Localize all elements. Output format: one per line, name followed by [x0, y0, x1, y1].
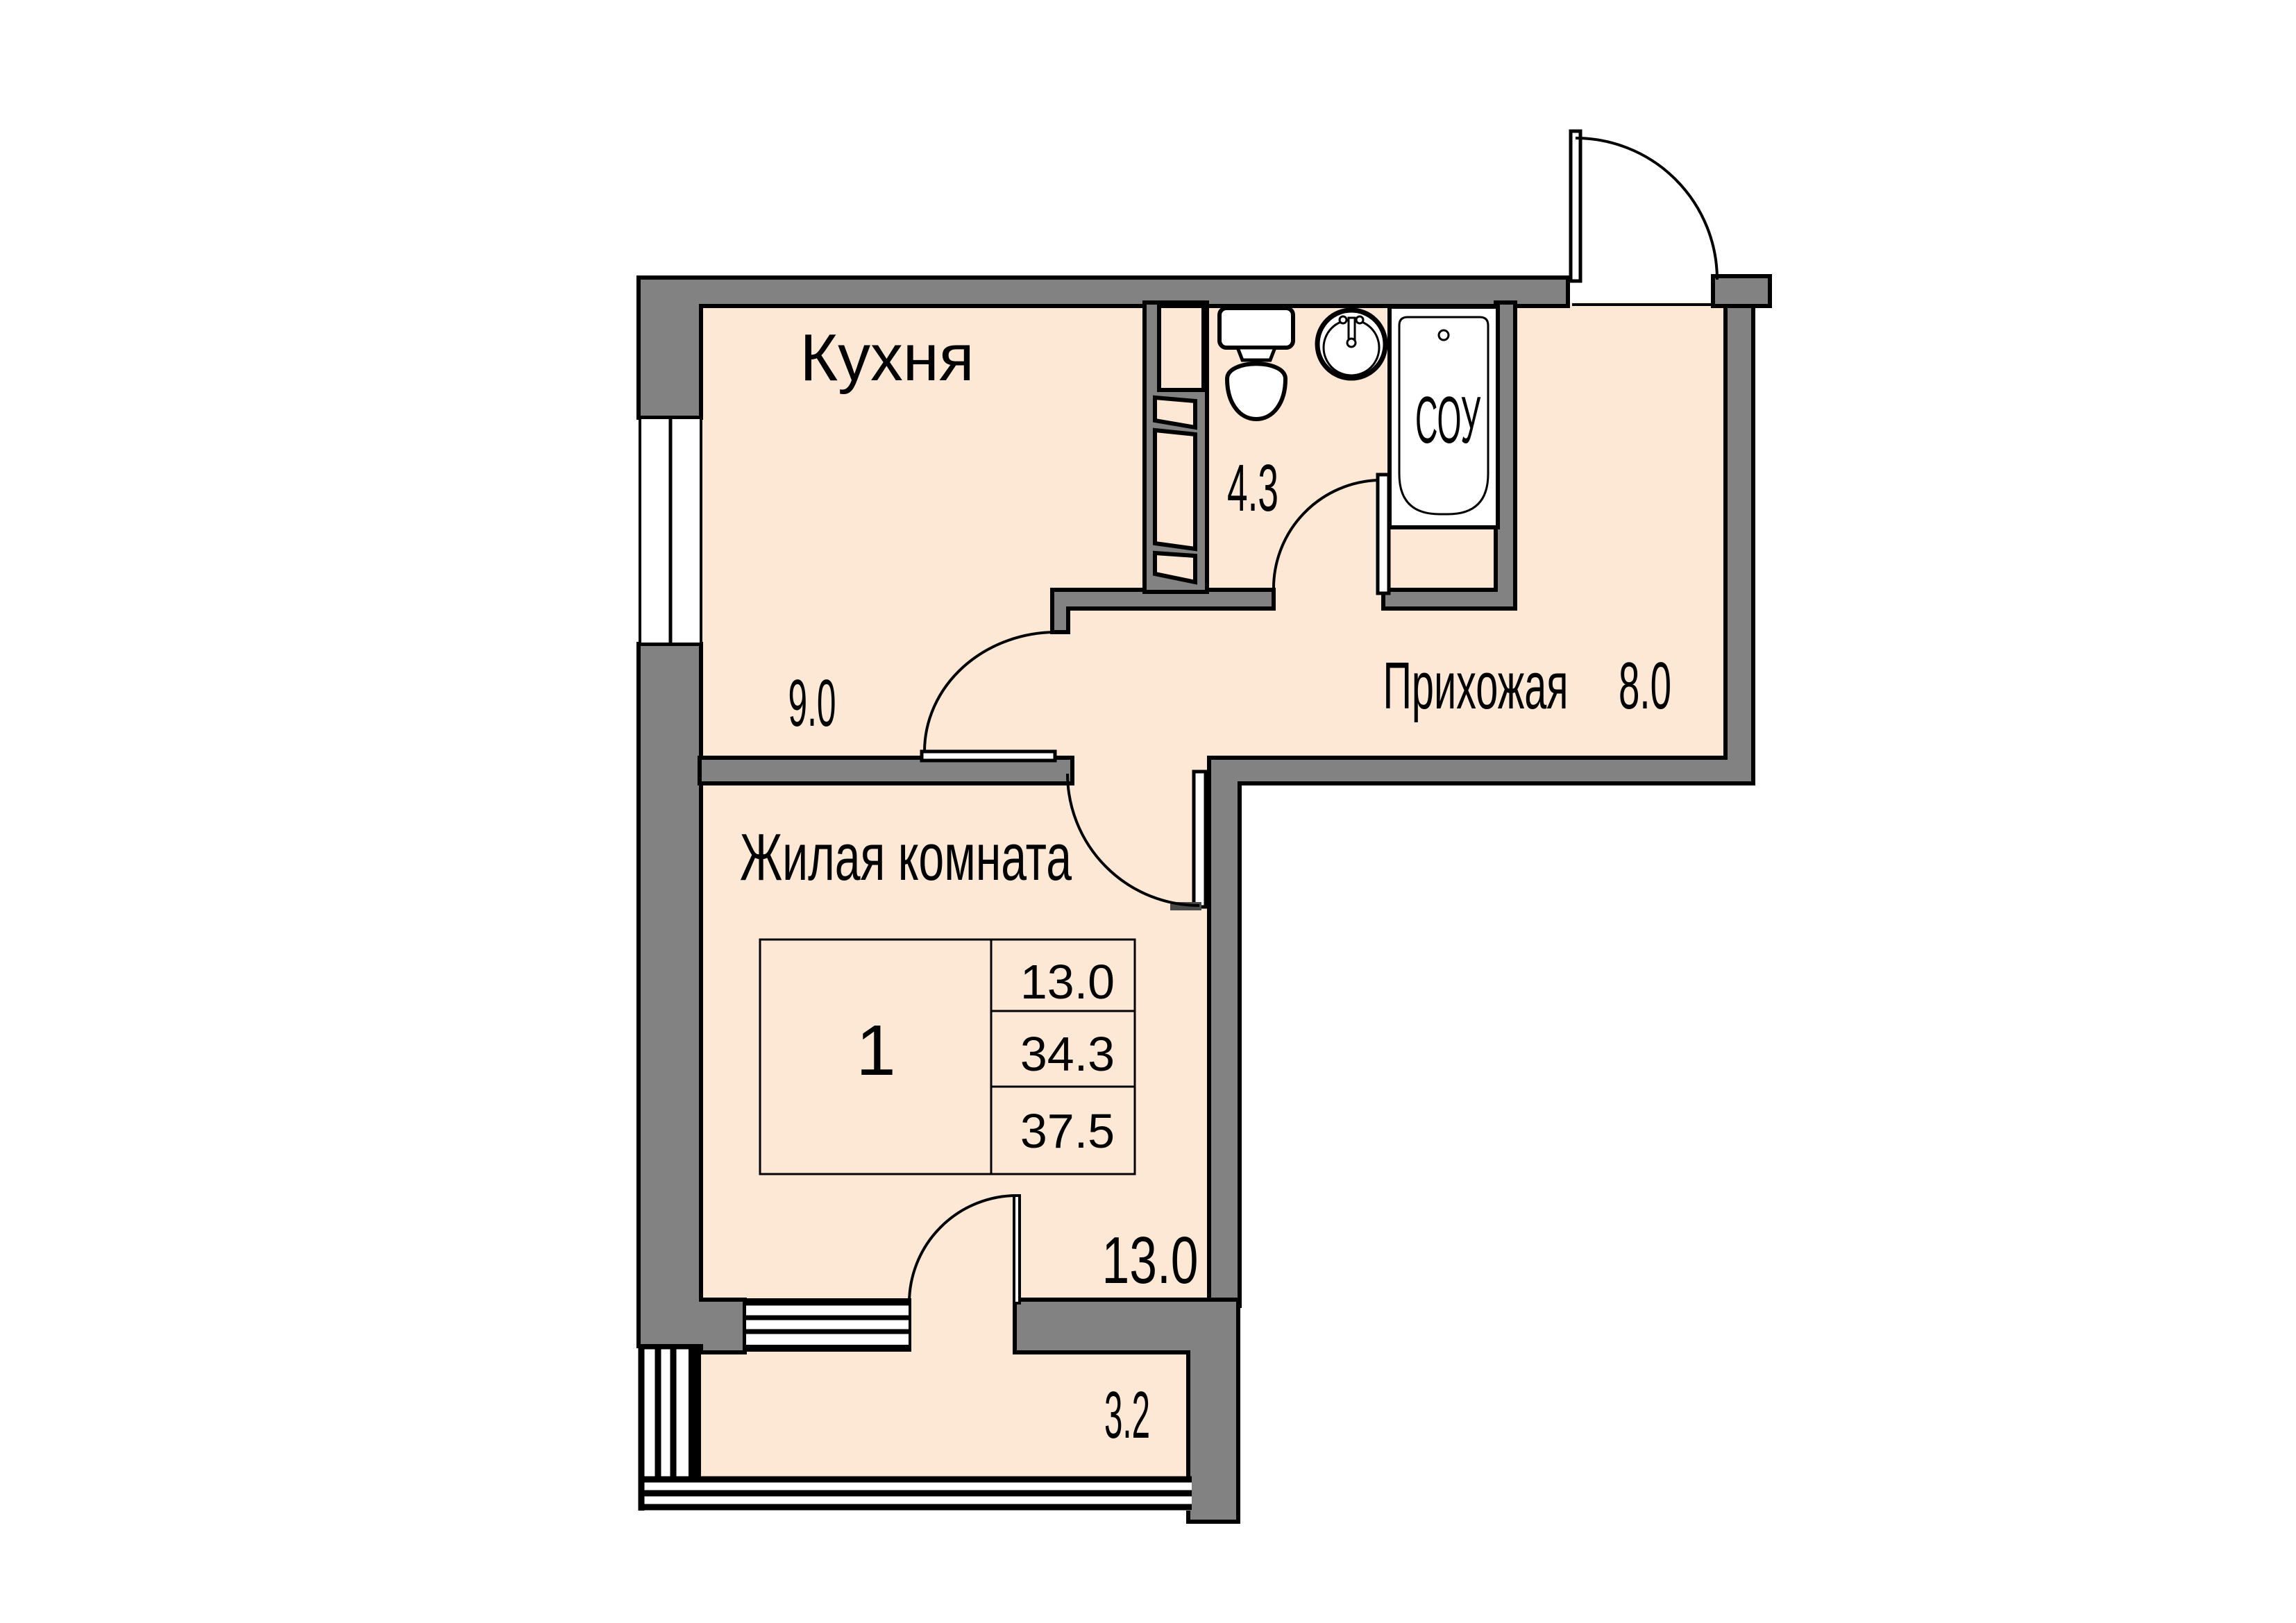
svg-text:4.3: 4.3	[1227, 451, 1278, 525]
svg-text:13.0: 13.0	[1102, 1223, 1199, 1298]
svg-text:3.2: 3.2	[1104, 1378, 1150, 1452]
svg-text:13.0: 13.0	[1020, 955, 1115, 1009]
svg-text:9.0: 9.0	[788, 666, 836, 740]
svg-text:34.3: 34.3	[1020, 1027, 1115, 1081]
svg-text:8.0: 8.0	[1619, 649, 1671, 723]
svg-text:Кухня: Кухня	[800, 321, 974, 395]
svg-text:1: 1	[856, 1010, 895, 1090]
svg-text:37.5: 37.5	[1020, 1104, 1115, 1158]
svg-text:Прихожая: Прихожая	[1383, 649, 1569, 723]
svg-text:СОУ: СОУ	[1415, 383, 1480, 457]
svg-text:Жилая комната: Жилая комната	[740, 820, 1072, 894]
